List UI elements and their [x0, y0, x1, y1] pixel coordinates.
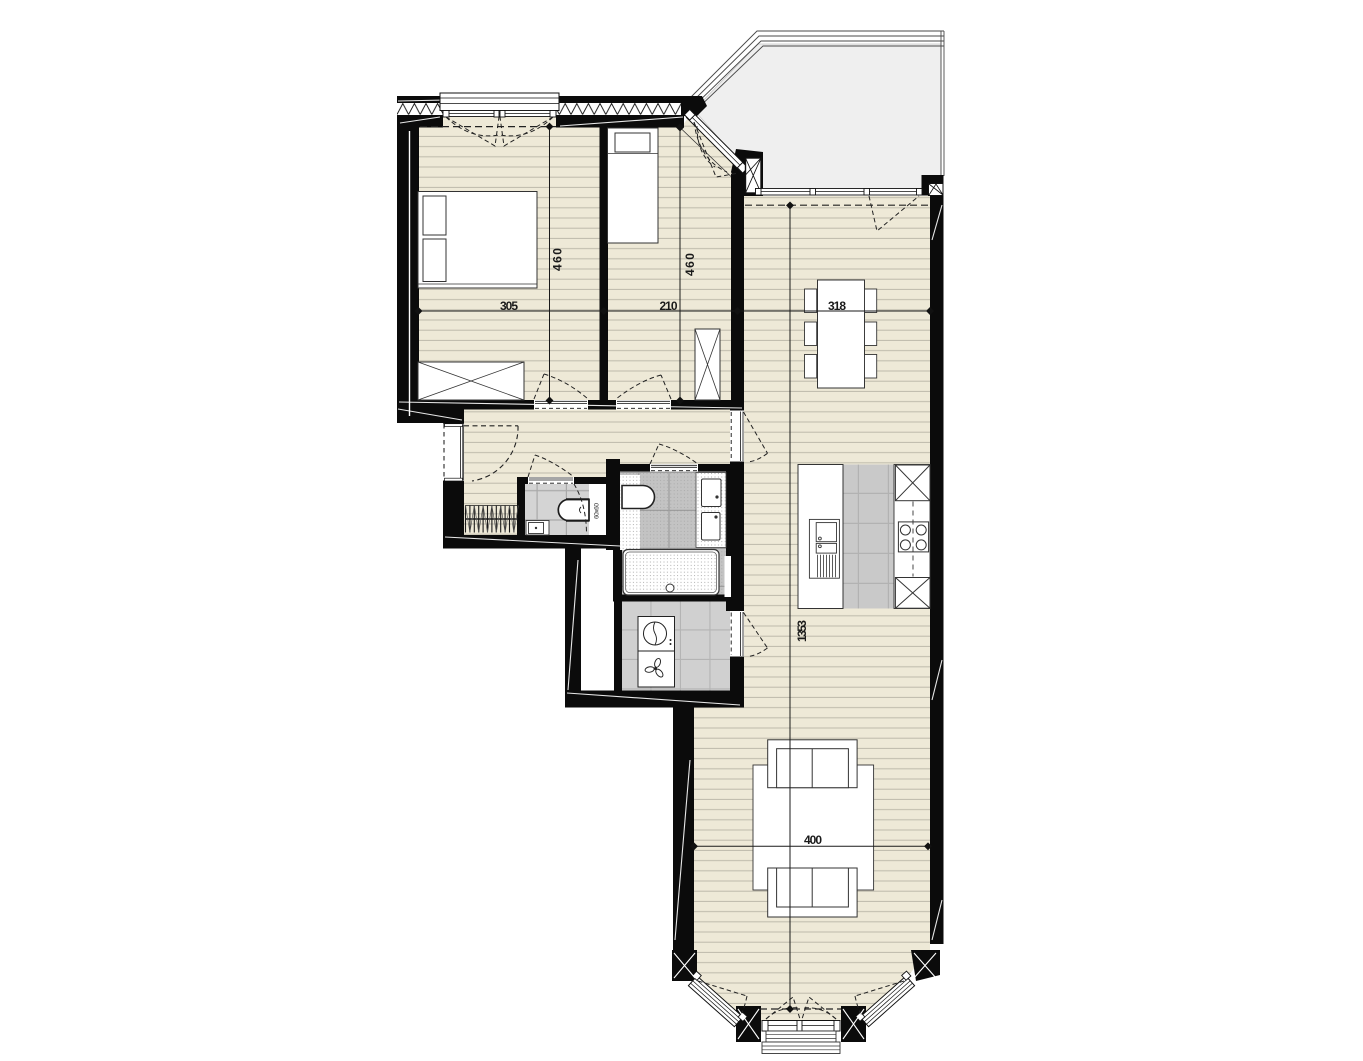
svg-text:400: 400 — [804, 833, 822, 847]
svg-text:210: 210 — [660, 299, 678, 313]
svg-text:318: 318 — [828, 299, 846, 313]
svg-text:60x60: 60x60 — [594, 503, 601, 519]
svg-text:1353: 1353 — [795, 620, 809, 642]
svg-text:305: 305 — [500, 299, 518, 313]
svg-text:460: 460 — [683, 253, 697, 276]
svg-text:460: 460 — [551, 248, 565, 271]
